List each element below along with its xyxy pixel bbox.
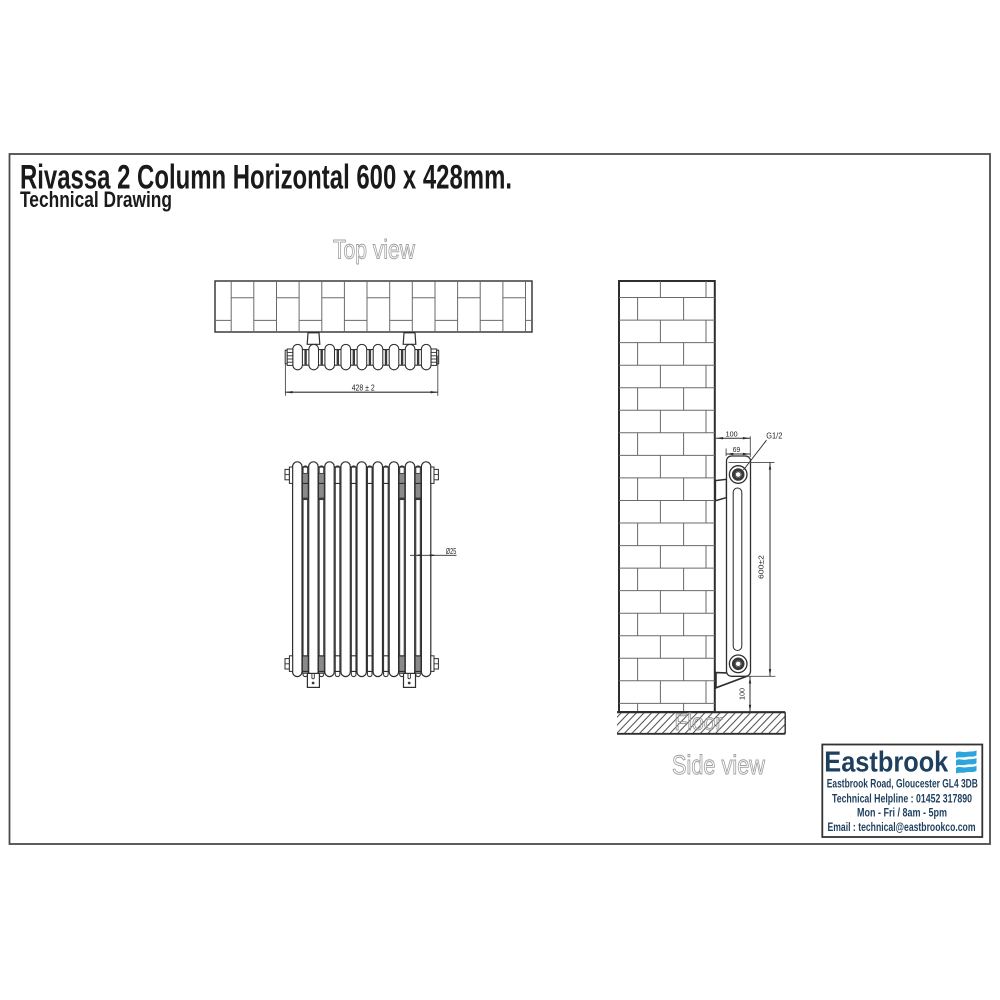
svg-text:Technical Helpline : 01452 317: Technical Helpline : 01452 317890 <box>832 791 972 805</box>
svg-text:Side view: Side view <box>672 750 766 780</box>
svg-text:600±2: 600±2 <box>757 555 766 579</box>
svg-text:100: 100 <box>738 688 747 700</box>
svg-text:Top view: Top view <box>333 235 416 265</box>
svg-text:Eastbrook: Eastbrook <box>824 747 949 779</box>
svg-text:Floor: Floor <box>675 709 723 735</box>
svg-text:Eastbrook Road, Gloucester GL4: Eastbrook Road, Gloucester GL4 3DB <box>827 777 978 791</box>
svg-text:69: 69 <box>733 445 741 454</box>
svg-text:Email : technical@eastbrookco.: Email : technical@eastbrookco.com <box>828 820 976 834</box>
svg-text:Mon - Fri / 8am - 5pm: Mon - Fri / 8am - 5pm <box>857 806 947 820</box>
svg-text:Ø25: Ø25 <box>446 547 457 556</box>
svg-text:428 ± 2: 428 ± 2 <box>352 384 375 393</box>
svg-text:Technical Drawing: Technical Drawing <box>20 187 172 212</box>
svg-text:G1/2: G1/2 <box>766 431 783 440</box>
svg-text:100: 100 <box>726 429 738 438</box>
